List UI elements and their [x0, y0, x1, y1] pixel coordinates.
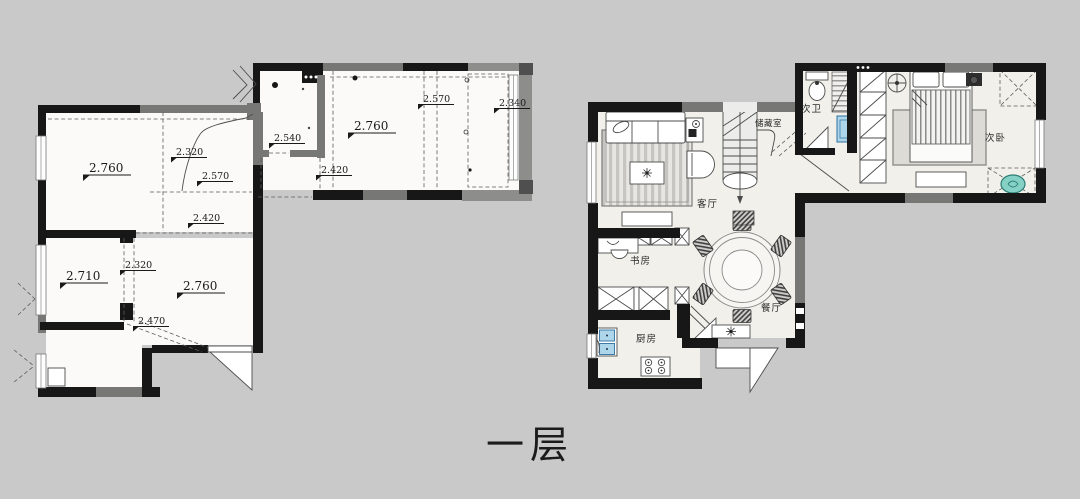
- height-value: 2.760: [89, 161, 123, 175]
- floor-plan-canvas: 2.760 2.320 2.570 2.420 2.540 2.420: [0, 0, 1080, 499]
- bedside-device: [966, 73, 982, 86]
- door-swing-chevrons: [233, 66, 256, 102]
- left-plan: 2.760 2.320 2.570 2.420 2.540 2.420: [14, 63, 533, 397]
- armchair: [687, 151, 715, 178]
- room-label-living: 客厅: [697, 198, 718, 210]
- kitchen-sink: [597, 328, 617, 356]
- room-label-dining: 餐厅: [761, 302, 782, 314]
- entry-door-swing: [716, 348, 778, 392]
- height-value: 2.320: [176, 147, 203, 158]
- room-label-kitchen: 厨房: [636, 333, 657, 345]
- height-value: 2.570: [423, 94, 450, 105]
- height-value: 2.320: [125, 260, 152, 271]
- side-table-lamp: [686, 118, 703, 142]
- floor-title: 一层: [486, 423, 574, 467]
- console-table: [712, 325, 750, 338]
- wardrobe-left: [860, 70, 886, 183]
- left-plan-floors: [46, 71, 520, 387]
- height-value: 2.760: [183, 279, 217, 293]
- height-value: 2.420: [193, 213, 220, 224]
- shoe-cabinet: [733, 211, 754, 225]
- room-label-bedroom: 次卧: [985, 132, 1006, 144]
- room-label-study: 书房: [630, 255, 651, 267]
- coffee-table: [630, 162, 664, 184]
- height-value: 2.340: [499, 98, 526, 109]
- sofa: [606, 112, 685, 143]
- tv-bench: [622, 212, 672, 226]
- height-value: 2.760: [354, 119, 388, 133]
- height-value: 2.540: [274, 133, 301, 144]
- right-plan: 客厅 储藏室 次卫 次卧 书房 餐厅 厨房: [587, 63, 1046, 392]
- left-plan-door-swing: [208, 346, 252, 390]
- room-label-bath: 次卫: [801, 103, 822, 115]
- ceiling-fan-icon: [888, 74, 906, 92]
- bed: [910, 68, 972, 162]
- height-value: 2.570: [202, 171, 229, 182]
- height-value: 2.710: [66, 269, 100, 283]
- height-value: 2.470: [138, 316, 165, 327]
- threshold-step: [48, 368, 65, 386]
- stove: [641, 357, 670, 376]
- height-value: 2.420: [321, 165, 348, 176]
- room-label-storage: 储藏室: [755, 118, 782, 129]
- bed-bench: [916, 172, 966, 187]
